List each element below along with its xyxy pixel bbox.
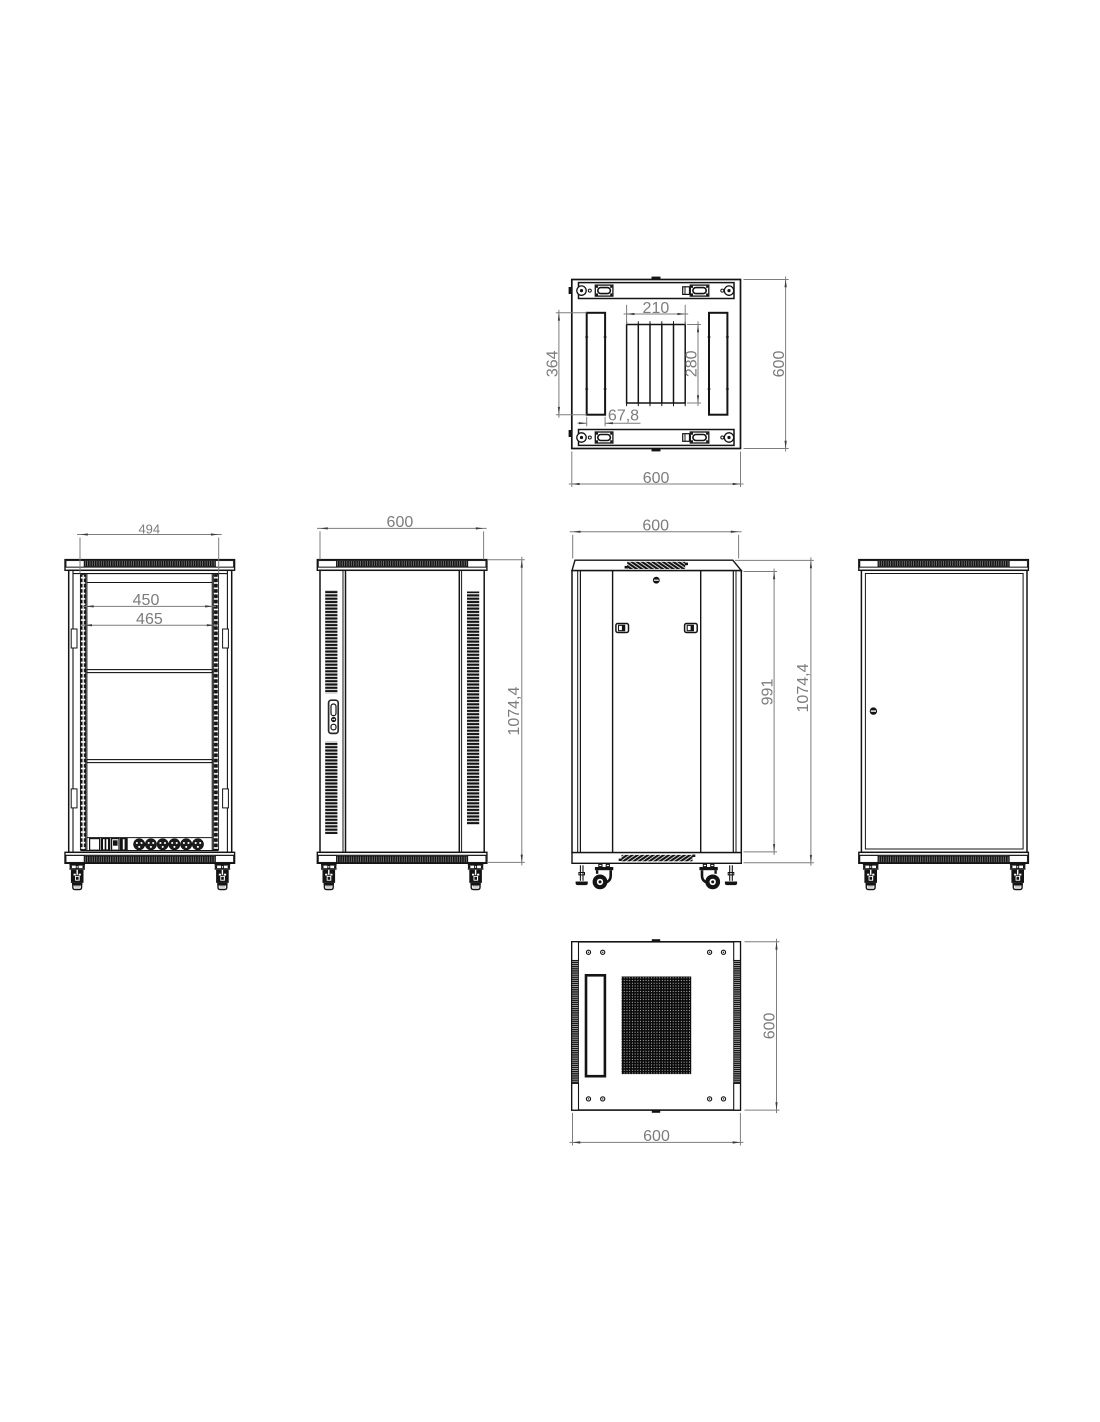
- svg-text:600: 600: [643, 470, 670, 487]
- svg-text:600: 600: [387, 514, 414, 531]
- svg-text:364: 364: [544, 350, 561, 377]
- svg-text:600: 600: [643, 1128, 670, 1145]
- svg-text:1074,4: 1074,4: [795, 663, 812, 712]
- svg-text:67,8: 67,8: [608, 408, 639, 425]
- svg-text:600: 600: [771, 351, 788, 378]
- svg-text:280: 280: [684, 350, 701, 377]
- svg-text:600: 600: [761, 1012, 778, 1039]
- svg-text:465: 465: [136, 611, 163, 628]
- svg-text:600: 600: [642, 518, 669, 535]
- svg-text:210: 210: [643, 300, 670, 317]
- svg-text:991: 991: [759, 679, 776, 706]
- svg-text:1074,4: 1074,4: [506, 687, 523, 736]
- svg-text:450: 450: [133, 592, 160, 609]
- svg-text:494: 494: [138, 521, 160, 536]
